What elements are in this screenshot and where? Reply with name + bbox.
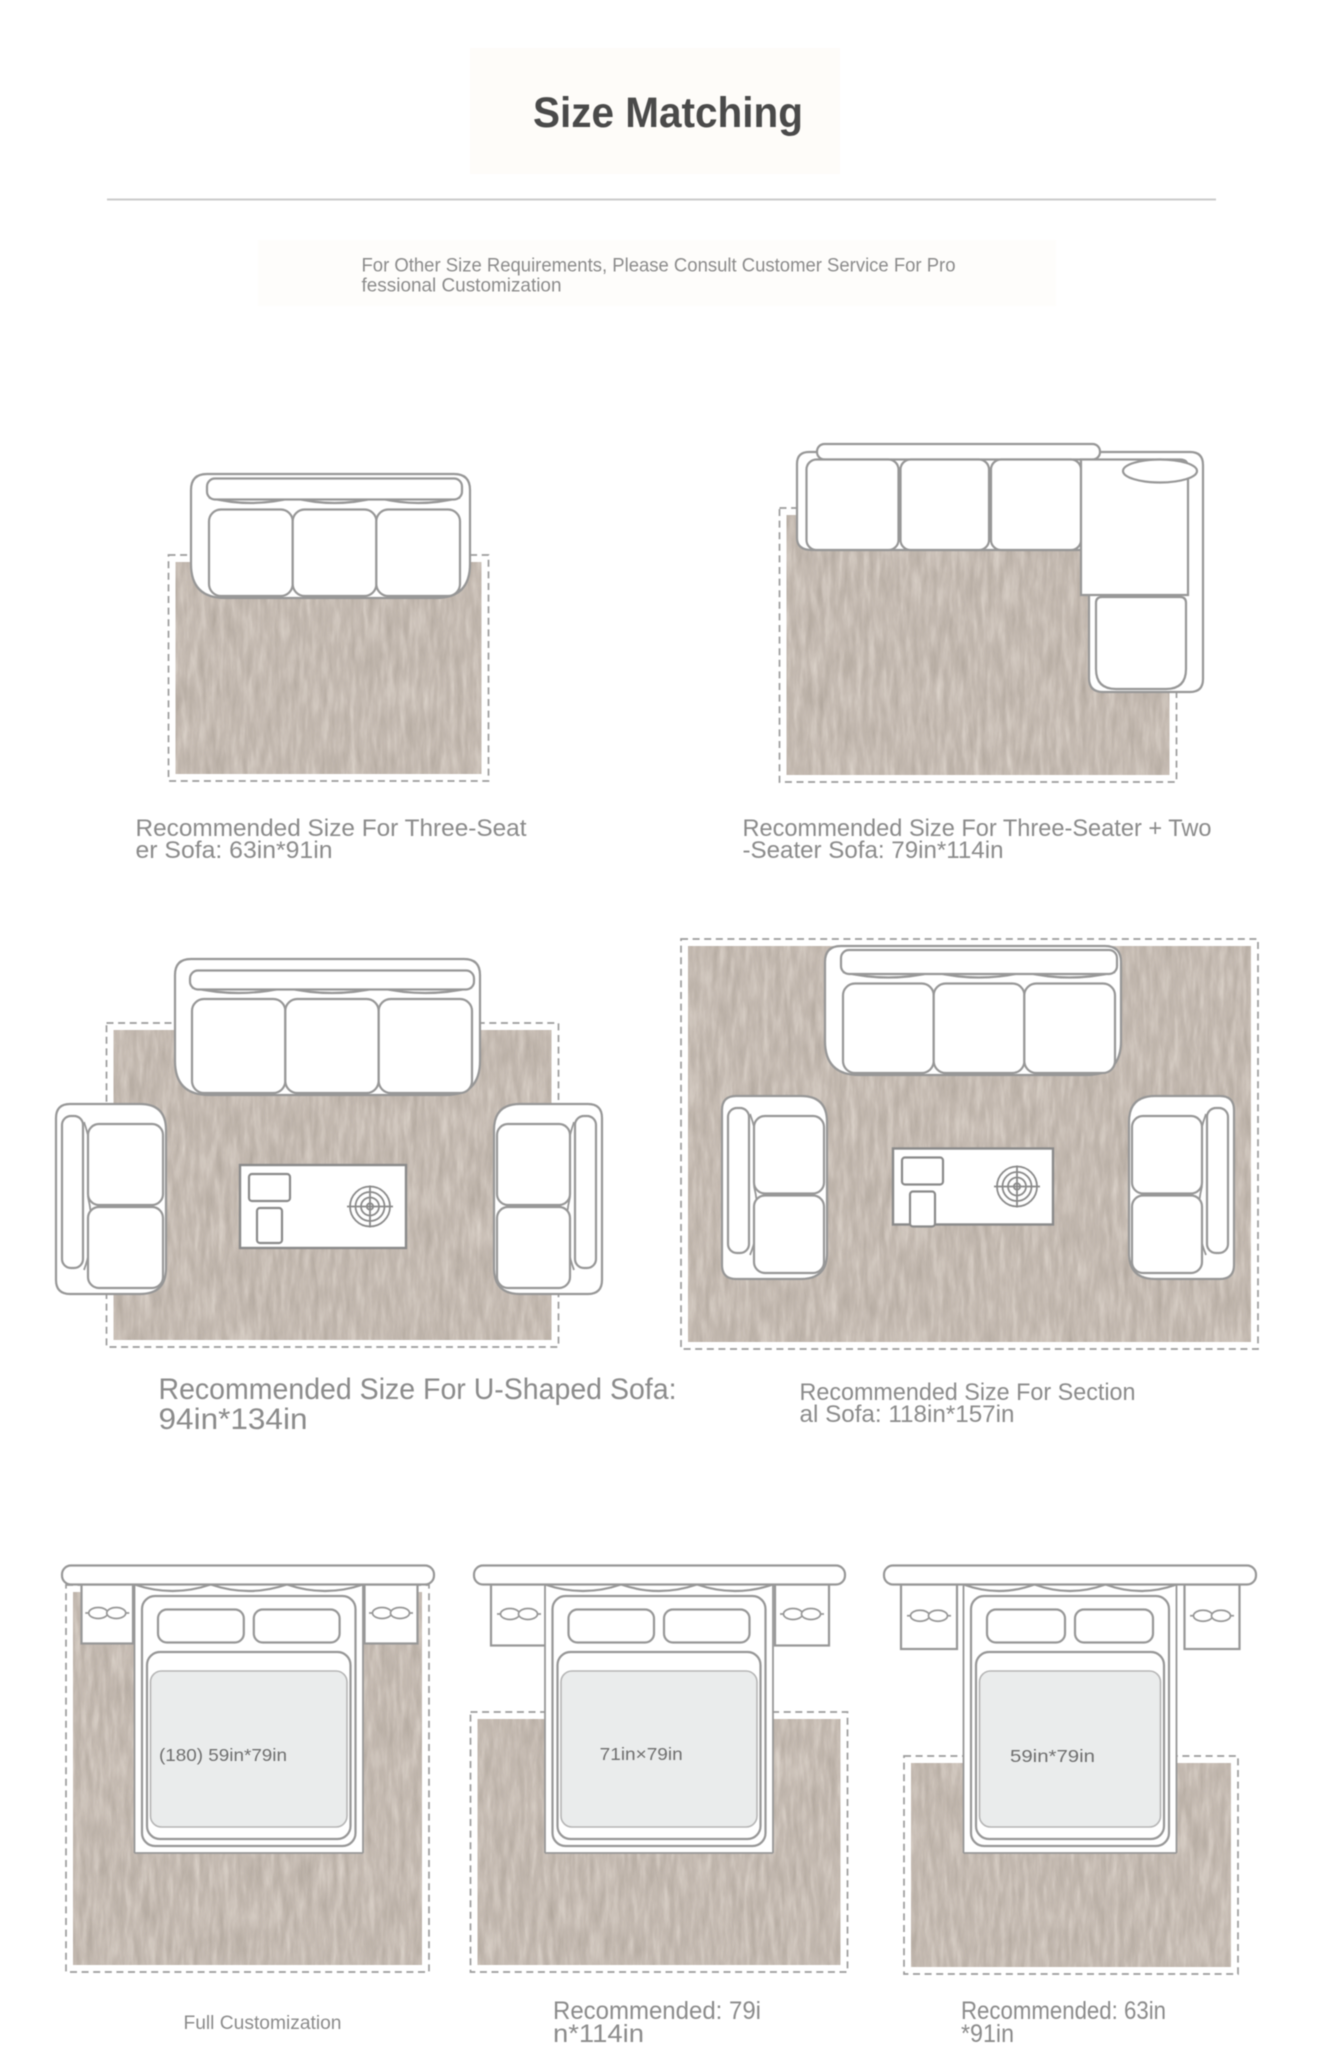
svg-text:er Sofa: 63in*91in: er Sofa: 63in*91in [136,837,333,864]
svg-text:71in×79in: 71in×79in [600,1744,683,1764]
svg-text:Recommended Size For U-Shaped: Recommended Size For U-Shaped Sofa: [159,1373,677,1406]
svg-text:-Seater Sofa: 79in*114in: -Seater Sofa: 79in*114in [743,837,1004,864]
svg-text:Full Customization: Full Customization [184,2013,342,2034]
svg-text:(180) 59in*79in: (180) 59in*79in [159,1745,287,1765]
svg-text:Size Matching: Size Matching [533,89,803,137]
svg-text:al Sofa: 118in*157in: al Sofa: 118in*157in [800,1401,1015,1428]
svg-text:fessional Customization: fessional Customization [362,275,562,297]
svg-text:For Other Size Requirements, P: For Other Size Requirements, Please Cons… [362,255,956,277]
svg-text:59in*79in: 59in*79in [1010,1746,1095,1766]
svg-text:*91in: *91in [961,2020,1014,2048]
svg-text:n*114in: n*114in [553,2020,644,2048]
svg-text:94in*134in: 94in*134in [159,1403,308,1436]
